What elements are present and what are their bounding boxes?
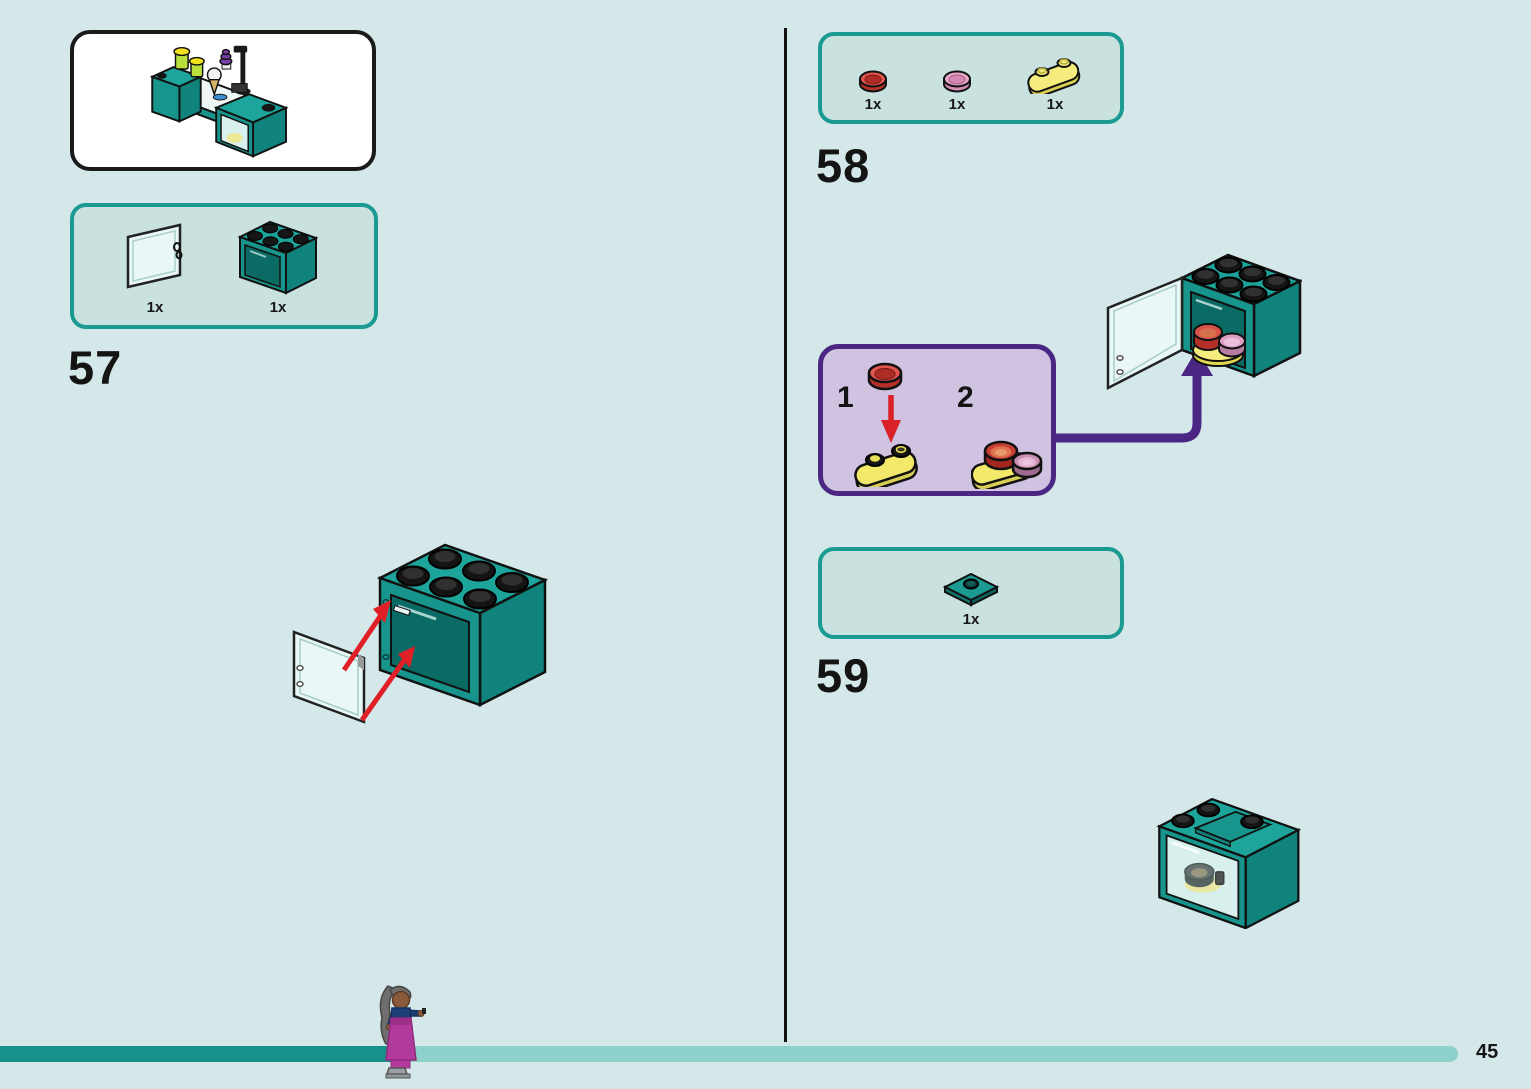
open-door	[1108, 278, 1182, 388]
red-round-tile-piece	[865, 361, 905, 393]
part-pink-tile: 1x	[942, 69, 972, 112]
page-number: 45	[1476, 1041, 1498, 1064]
transparent-door-icon	[122, 217, 188, 297]
step59-cupboard-diagram	[1152, 770, 1302, 929]
substep-2-label: 2	[957, 383, 974, 413]
part-count: 1x	[963, 612, 980, 627]
part-count: 1x	[270, 300, 287, 315]
step59-parts-box: 1x	[818, 547, 1124, 639]
progress-bar-done	[0, 1046, 402, 1062]
part-count: 1x	[147, 300, 164, 315]
red-round-tile-icon	[858, 69, 888, 94]
door-piece	[294, 632, 364, 722]
step58-subassembly-callout: 1 2	[818, 344, 1056, 496]
part-cupboard: 1x	[230, 205, 326, 315]
instruction-page: 1x 1x 57	[0, 0, 1531, 1089]
build-preview-box	[70, 30, 376, 171]
yellow-rounded-plate-icon	[1026, 50, 1084, 94]
step58-cupboard-diagram	[1092, 246, 1302, 426]
part-count: 1x	[949, 97, 966, 112]
step59-number: 59	[816, 652, 870, 699]
progress-bar-remaining	[402, 1046, 1458, 1062]
part-count: 1x	[865, 97, 882, 112]
step58-parts-box: 1x 1x 1x	[818, 32, 1124, 124]
minidoll-figure	[374, 984, 426, 1080]
substep-1-label: 1	[837, 383, 854, 413]
part-yellow-plate: 1x	[1026, 50, 1084, 112]
pink-round-tile-icon	[942, 69, 972, 94]
part-teal-plate: 1x	[939, 567, 1003, 627]
step57-parts-box: 1x 1x	[70, 203, 378, 329]
yellow-plate-target	[851, 433, 931, 487]
part-count: 1x	[1047, 97, 1064, 112]
finished-subassembly	[971, 425, 1055, 489]
step58-number: 58	[816, 142, 870, 189]
teal-plate-icon	[939, 567, 1003, 609]
cupboard-icon	[230, 205, 326, 297]
step57-number: 57	[68, 344, 122, 391]
step57-assembly-diagram	[288, 520, 548, 730]
column-divider	[784, 28, 787, 1042]
part-door: 1x	[122, 217, 188, 315]
build-preview-illustration	[128, 38, 318, 164]
part-red-tile: 1x	[858, 69, 888, 112]
